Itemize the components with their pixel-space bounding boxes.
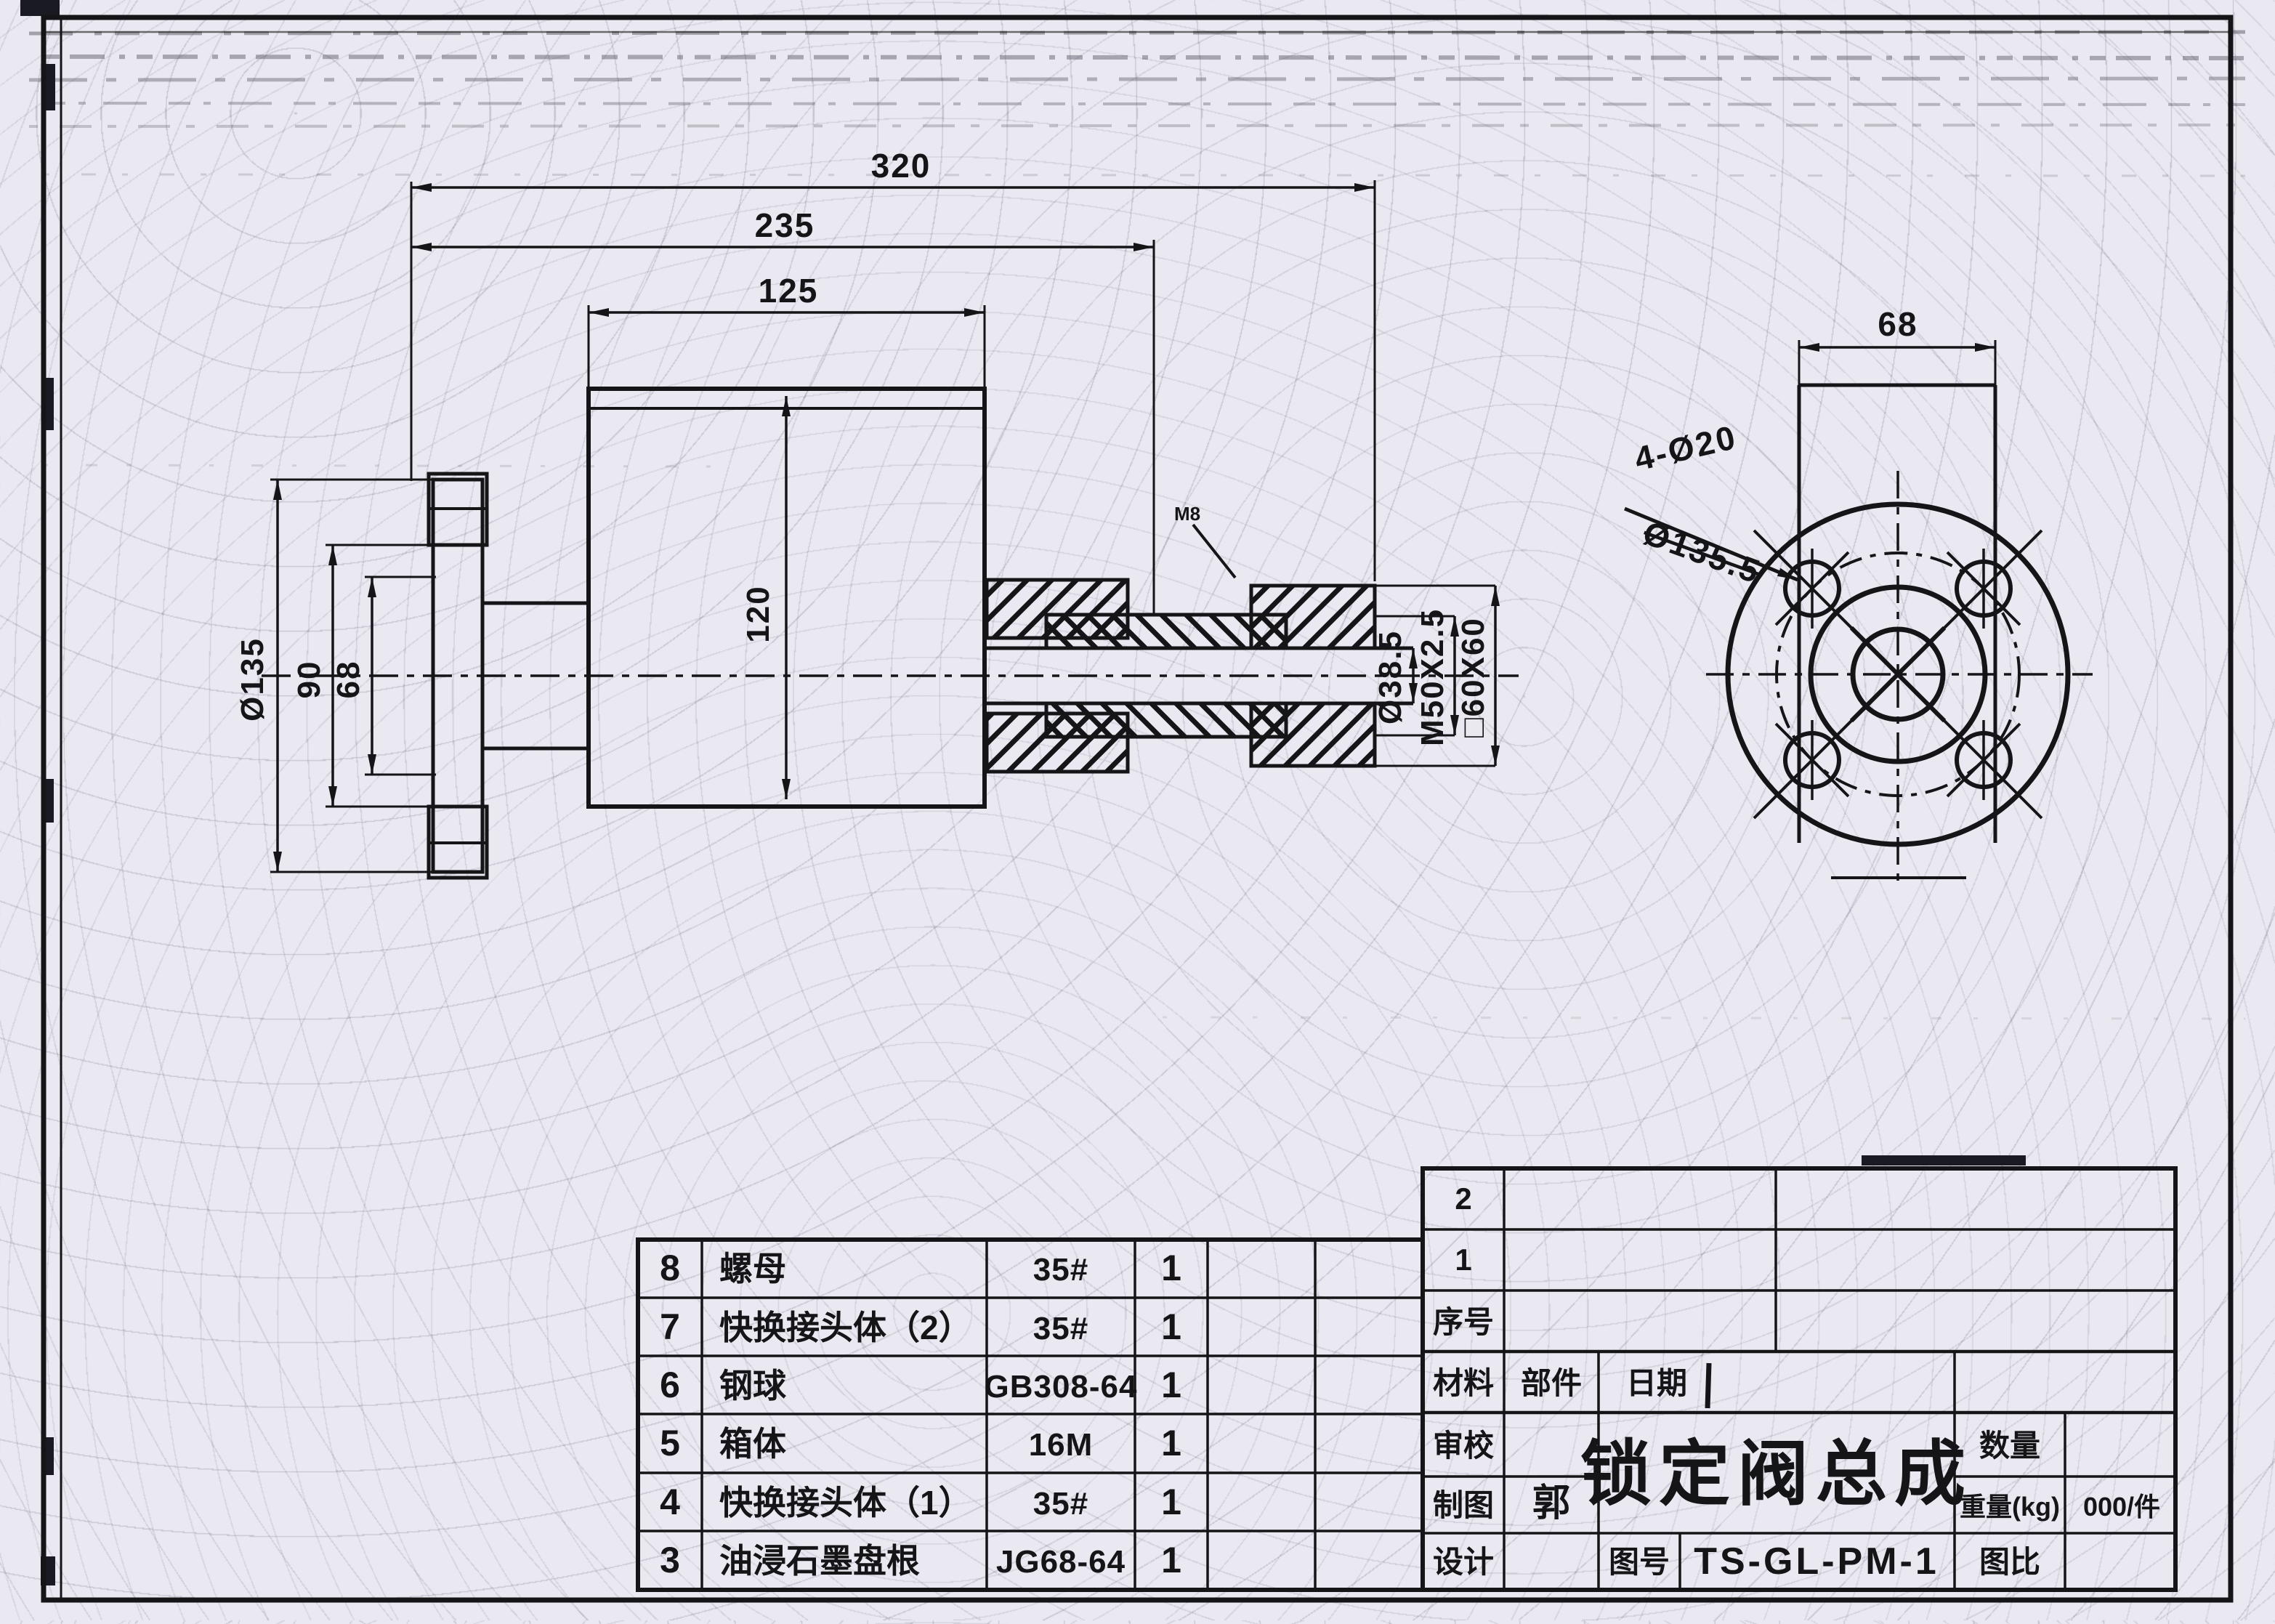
holes-label: 4-Ø20 <box>1631 418 1741 478</box>
dim-flange-90-label: 90 <box>291 660 327 699</box>
dim-endview-68-label: 68 <box>1878 305 1918 343</box>
part-no: 7 <box>660 1306 680 1347</box>
bolt-hole <box>1754 702 1870 818</box>
dim-square-label: □60X60 <box>1455 617 1491 738</box>
dim-bore-label: Ø38.5 <box>1373 630 1408 724</box>
part-no: 3 <box>660 1540 680 1580</box>
tb-qty: 数量 <box>1979 1429 2040 1463</box>
tb-date: 日期 <box>1626 1366 1687 1400</box>
title-block: 2 1 序号 材料 部件 日期 审校 制图 郭 设计 锁定阀总成 图号 TS-G… <box>1423 1168 2175 1590</box>
dim-320-label: 320 <box>871 147 932 185</box>
bolt-hole <box>1926 530 2042 647</box>
dim-320: 320 <box>411 147 1375 581</box>
part-qty: 1 <box>1161 1248 1181 1288</box>
dim-flange-od-label: Ø135 <box>235 637 270 722</box>
part-name: 快换接头体（1） <box>719 1484 972 1522</box>
part-no: 8 <box>660 1248 680 1288</box>
part-no: 4 <box>660 1482 680 1522</box>
part-qty: 1 <box>1161 1306 1181 1347</box>
tb-review: 审校 <box>1433 1429 1494 1463</box>
tb-draft-value: 郭 <box>1532 1482 1570 1524</box>
part-spec: 35# <box>1033 1311 1088 1346</box>
tb-design: 设计 <box>1433 1545 1494 1579</box>
date-handwritten-mark <box>1708 1363 1709 1408</box>
part-qty: 1 <box>1161 1423 1181 1463</box>
parts-row: 6 钢球 GB308-64 1 <box>660 1365 1181 1405</box>
part-qty: 1 <box>1161 1482 1181 1522</box>
part-spec: 35# <box>1033 1252 1088 1288</box>
end-view: 68 <box>1625 305 2093 881</box>
dim-bore: Ø38.5 <box>1373 630 1413 724</box>
part-spec: GB308-64 <box>984 1369 1137 1405</box>
bolt-hole <box>1754 530 1870 647</box>
flange-side-view <box>429 474 589 878</box>
tb-weight-value: 000/件 <box>2083 1492 2160 1522</box>
part-name: 快换接头体（2） <box>719 1309 972 1346</box>
tb-scale: 图比 <box>1979 1545 2040 1579</box>
tb-dwgno-label: 图号 <box>1609 1545 1670 1579</box>
drawing-title: 锁定阀总成 <box>1580 1434 1973 1514</box>
tb-row2: 2 <box>1455 1181 1471 1216</box>
part-name: 钢球 <box>719 1367 787 1405</box>
part-no: 6 <box>660 1365 680 1405</box>
part-qty: 1 <box>1161 1365 1181 1405</box>
dim-120: 120 <box>740 396 786 799</box>
tb-part: 部件 <box>1521 1366 1582 1400</box>
part-name: 油浸石墨盘根 <box>719 1542 920 1580</box>
tb-weight: 重量(kg) <box>1960 1492 2060 1522</box>
dim-thread-label: M50X2.5 <box>1415 608 1450 746</box>
dim-flange-68-label: 68 <box>331 660 366 699</box>
section-view: M8 320 235 125 120 <box>235 147 1519 878</box>
dim-125: 125 <box>589 272 985 389</box>
dim-235: 235 <box>411 206 1154 614</box>
tb-row1: 1 <box>1455 1243 1471 1277</box>
bolt-hole <box>1926 702 2042 818</box>
blueprint-canvas: M8 320 235 125 120 <box>0 0 2275 1620</box>
tb-draft: 制图 <box>1433 1488 1494 1522</box>
part-name: 螺母 <box>719 1250 786 1288</box>
part-spec: 35# <box>1033 1486 1088 1522</box>
tb-seq-label: 序号 <box>1433 1305 1494 1339</box>
sheet-border <box>44 17 2231 1600</box>
bolt-hole-callout: 4-Ø20 Ø135.5 <box>1625 418 1798 591</box>
parts-row: 4 快换接头体（1） 35# 1 <box>660 1482 1181 1522</box>
scan-noise-bands <box>29 32 2245 1019</box>
tb-material: 材料 <box>1433 1366 1494 1400</box>
scan-edge-marks <box>20 0 2026 1585</box>
dim-endview-68: 68 <box>1799 305 1995 385</box>
part-name: 箱体 <box>719 1425 786 1463</box>
coupling-section-upper <box>987 580 1375 648</box>
dim-125-label: 125 <box>759 272 819 310</box>
drawing-number: TS-GL-PM-1 <box>1694 1540 1939 1583</box>
dim-235-label: 235 <box>755 206 815 244</box>
part-spec: JG68-64 <box>996 1544 1126 1580</box>
part-qty: 1 <box>1161 1540 1181 1580</box>
bolt-circle-label: Ø135.5 <box>1638 514 1767 591</box>
part-spec: 16M <box>1029 1427 1094 1463</box>
parts-row: 8 螺母 35# 1 <box>660 1248 1181 1288</box>
parts-table: 8 螺母 35# 1 7 快换接头体（2） 35# 1 6 钢球 GB308-6… <box>638 1240 1423 1590</box>
tap-label: M8 <box>1174 503 1200 525</box>
part-no: 5 <box>660 1423 680 1463</box>
parts-row: 7 快换接头体（2） 35# 1 <box>660 1306 1181 1347</box>
coupling-section-lower <box>987 703 1375 772</box>
parts-row: 5 箱体 16M 1 <box>660 1423 1181 1463</box>
tap-leader: M8 <box>1174 503 1235 578</box>
dim-120-label: 120 <box>740 585 776 642</box>
parts-row: 3 油浸石墨盘根 JG68-64 1 <box>660 1540 1181 1580</box>
